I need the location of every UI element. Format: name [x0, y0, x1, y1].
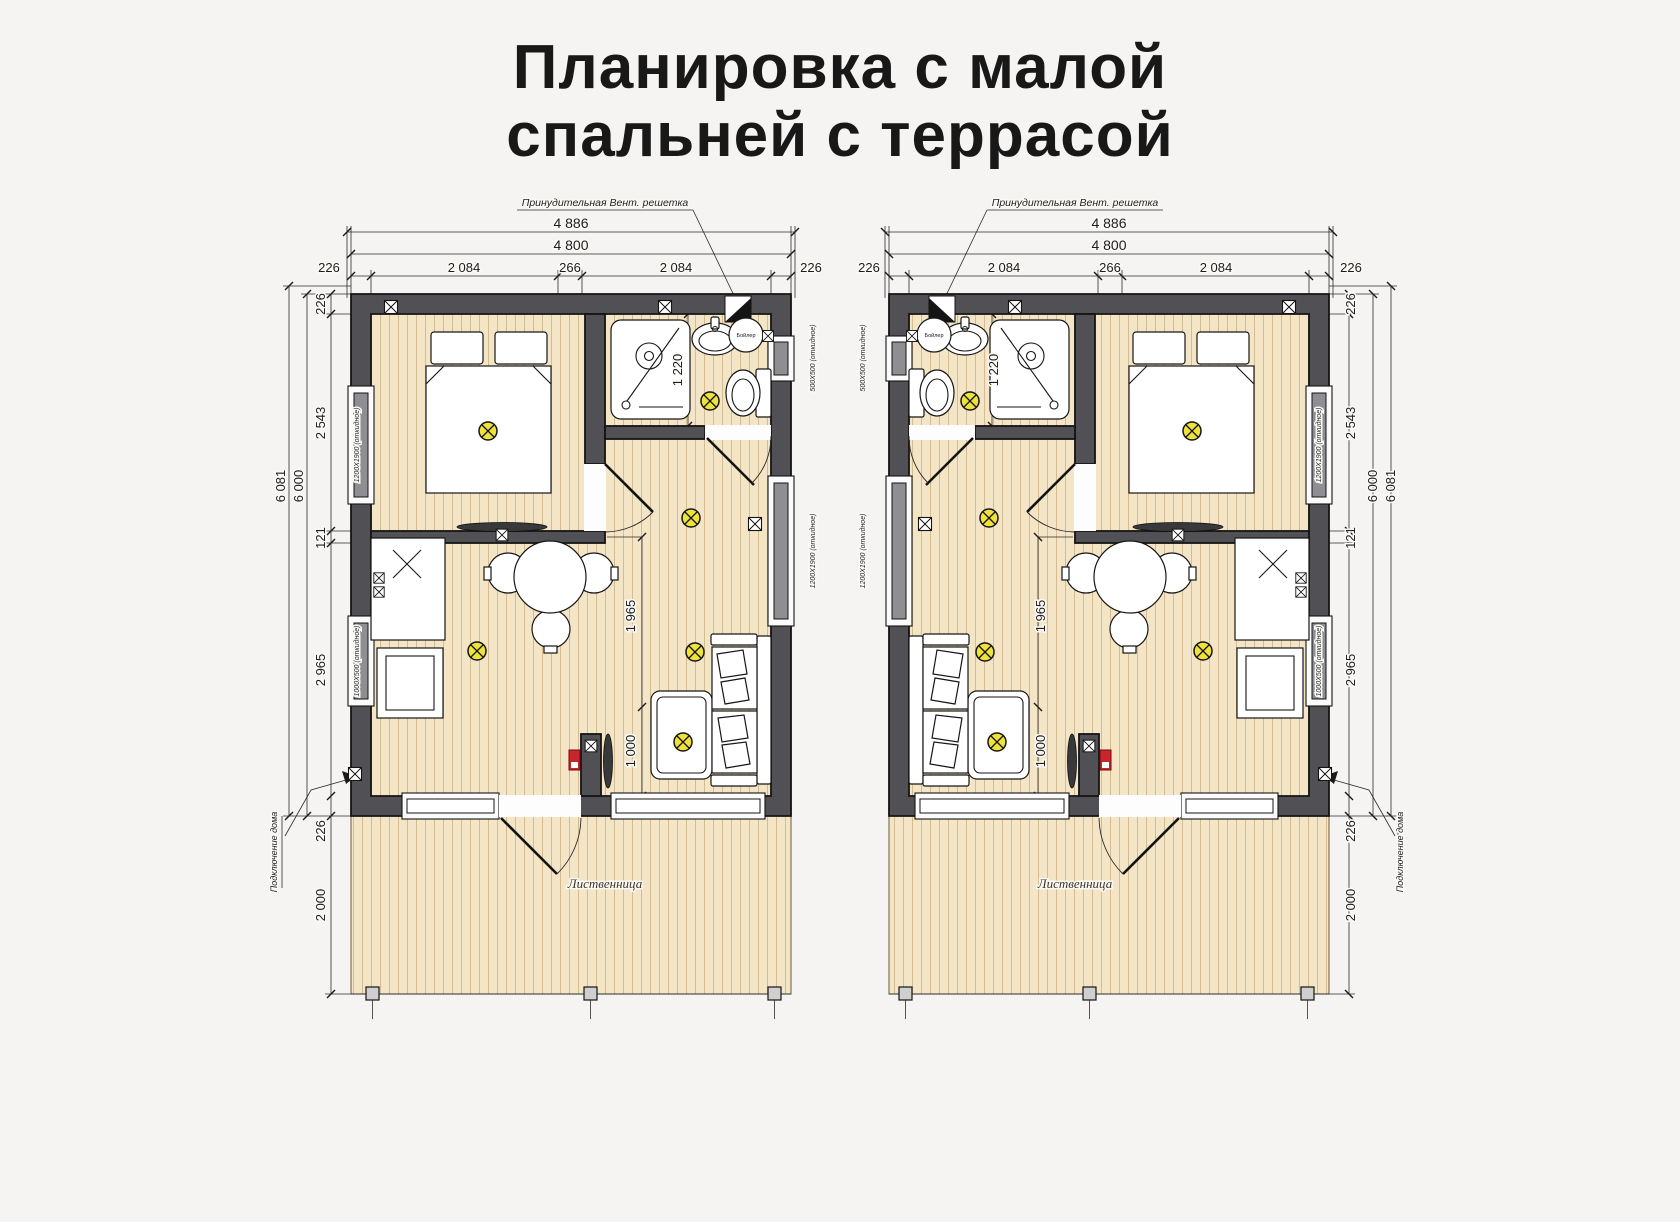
dim-width: 4 800 [1091, 237, 1126, 253]
dim-ext-width: 4 886 [553, 215, 588, 231]
dim-partition: 121 [1343, 528, 1358, 550]
page-title-line2: спальней с террасой [0, 102, 1680, 170]
dim-hall-span: 1 965 [623, 600, 638, 633]
dim-terrace-depth: 2 000 [313, 889, 328, 922]
dim-height: 6 000 [291, 470, 306, 503]
window-label-living: 1200X1900 (откидное) [859, 514, 867, 589]
dim-wall: 226 [858, 260, 880, 275]
dim-span-a: 2 084 [1200, 260, 1233, 275]
dim-bedroom-depth: 2 543 [313, 407, 328, 440]
window-label-kitchen: 1000X500 (откидное) [353, 626, 361, 697]
dim-hall-span: 1 965 [1033, 600, 1048, 633]
plan-geometry-mirrored [881, 210, 1398, 1019]
dim-living-depth: 2 965 [313, 654, 328, 687]
dim-bath-depth: 1 220 [670, 354, 685, 387]
dim-ext-height: 6 081 [273, 470, 288, 503]
dim-tv-span: 1 000 [1033, 735, 1048, 768]
floor-plans: Принудительная Вент. решетка 4 886 4 800… [0, 186, 1680, 1066]
dim-wall: 226 [313, 821, 328, 843]
dim-span-a: 2 084 [448, 260, 481, 275]
page-title-line1: Планировка с малой [0, 34, 1680, 102]
terrace-wood-label: Лиственница [567, 876, 643, 891]
dim-partition: 121 [313, 528, 328, 550]
dim-span-b: 2 084 [660, 260, 693, 275]
house-connection-label: Подключение дома [269, 812, 279, 892]
boiler-label: Бойлер [924, 332, 943, 339]
vent-grille-label: Принудительная Вент. решетка [992, 197, 1159, 209]
window-label-bathroom: 500X500 (откидное) [859, 325, 867, 392]
plan-geometry [282, 210, 799, 1019]
boiler-label: Бойлер [736, 332, 755, 339]
dim-span-mid: 266 [559, 260, 581, 275]
window-label-bathroom: 500X500 (откидное) [809, 325, 817, 392]
dim-wall: 226 [318, 260, 340, 275]
floor-plan-right: Принудительная Вент. решетка 4 886 4 800… [845, 186, 1425, 1066]
floor-plan-left: Принудительная Вент. решетка 4 886 4 800… [255, 186, 835, 1066]
terrace-wood-label: Лиственница [1037, 876, 1113, 891]
window-label-living: 1200X1900 (откидное) [809, 514, 817, 589]
page-title: Планировка с малой спальней с террасой [0, 34, 1680, 170]
dim-wall: 226 [1340, 260, 1362, 275]
dim-wall: 226 [1343, 294, 1358, 316]
dim-living-depth: 2 965 [1343, 654, 1358, 687]
window-label-kitchen: 1000X500 (откидное) [1315, 626, 1323, 697]
house-connection-label: Подключение дома [1395, 812, 1405, 892]
dim-bedroom-depth: 2 543 [1343, 407, 1358, 440]
dim-wall: 226 [313, 294, 328, 316]
dim-width: 4 800 [553, 237, 588, 253]
window-label-bedroom: 1200X1900 (откидное) [353, 408, 361, 483]
dim-ext-height: 6 081 [1383, 470, 1398, 503]
dim-bath-depth: 1 220 [986, 354, 1001, 387]
dim-span-b: 2 084 [988, 260, 1021, 275]
dim-ext-width: 4 886 [1091, 215, 1126, 231]
vent-grille-label: Принудительная Вент. решетка [522, 197, 689, 209]
dim-span-mid: 266 [1099, 260, 1121, 275]
dim-height: 6 000 [1365, 470, 1380, 503]
dim-wall: 226 [800, 260, 822, 275]
window-label-bedroom: 1200X1900 (откидное) [1315, 408, 1323, 483]
dim-terrace-depth: 2 000 [1343, 889, 1358, 922]
dim-wall: 226 [1343, 821, 1358, 843]
dim-tv-span: 1 000 [623, 735, 638, 768]
